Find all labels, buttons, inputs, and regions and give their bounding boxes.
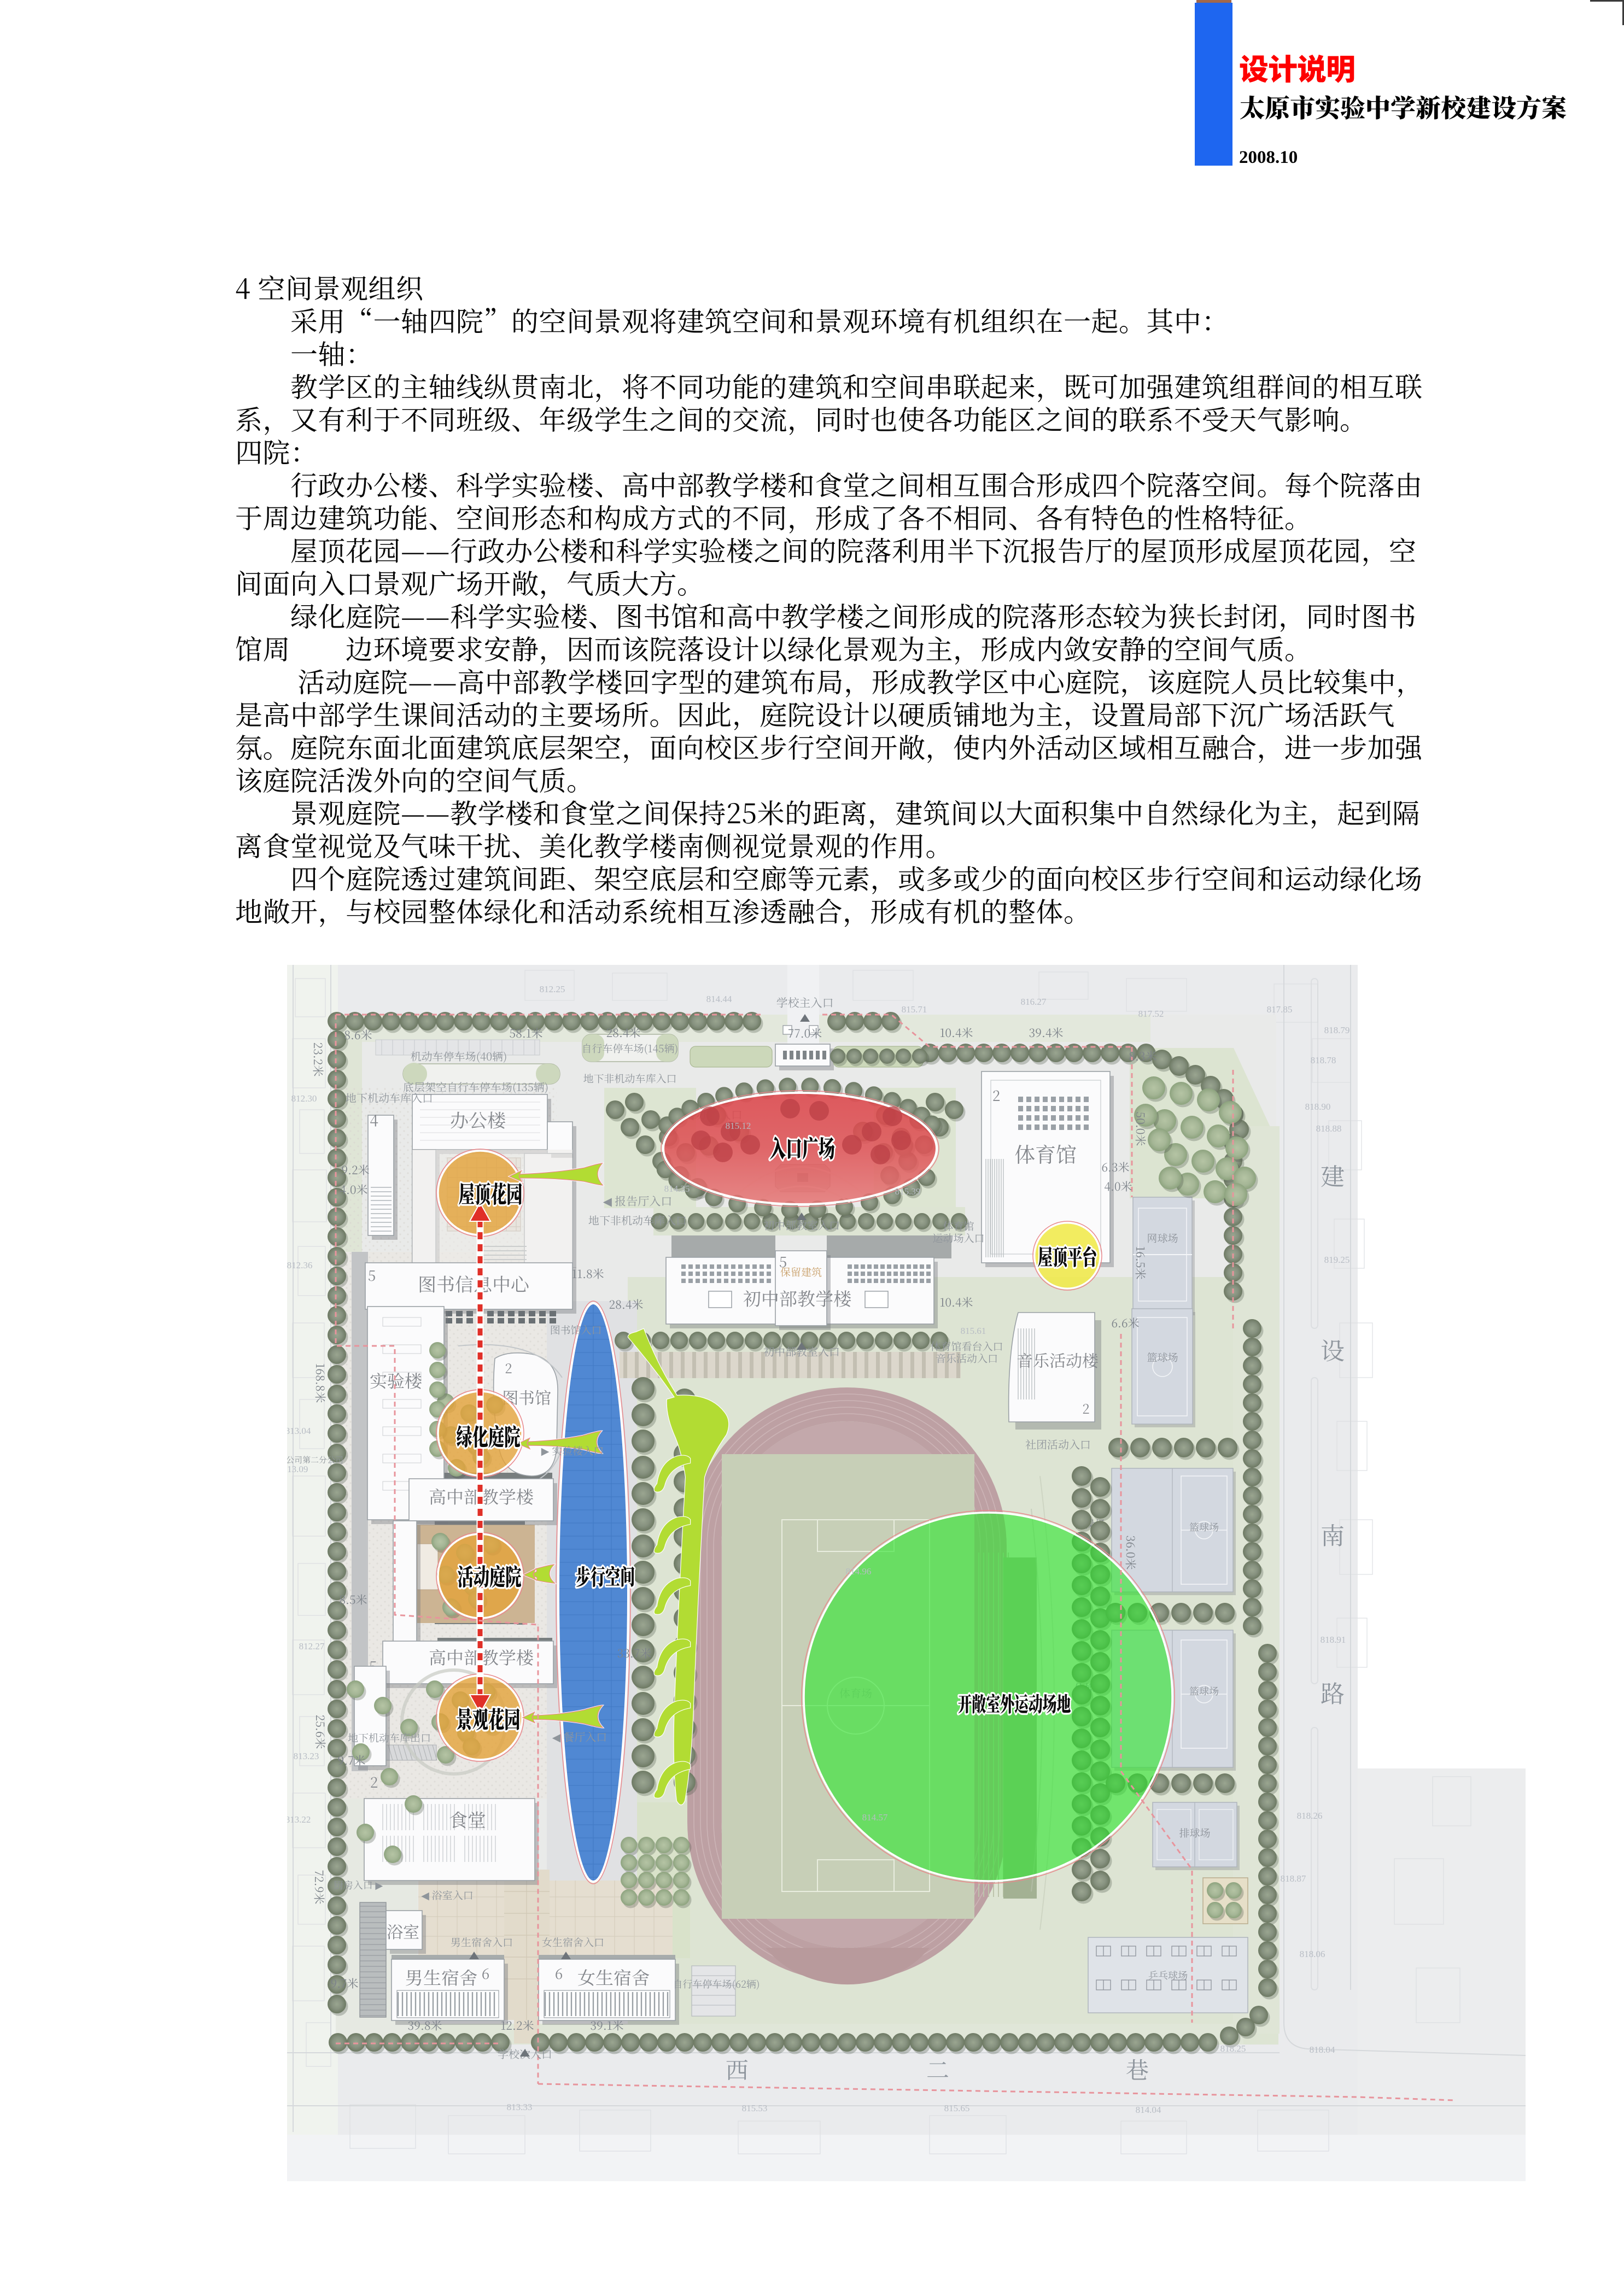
svg-text:男生宿舍: 男生宿舍 [405,1964,477,1990]
svg-text:815.53: 815.53 [742,2103,768,2113]
svg-text:二: 二 [926,2053,949,2086]
svg-text:巷: 巷 [1126,2053,1149,2086]
svg-text:813.09: 813.09 [287,1464,308,1474]
svg-text:11.8米: 11.8米 [571,1266,604,1282]
svg-text:运动场入口: 运动场入口 [932,1231,984,1245]
svg-text:818.87: 818.87 [1281,1873,1306,1884]
svg-text:818.25: 818.25 [1220,2043,1246,2054]
svg-text:学校主入口: 学校主入口 [776,994,834,1011]
svg-text:8.6米: 8.6米 [344,1027,372,1043]
svg-text:72.9米: 72.9米 [311,1870,328,1905]
svg-text:6: 6 [482,1963,490,1983]
svg-text:南: 南 [1321,1516,1345,1551]
svg-text:5: 5 [368,1265,376,1285]
svg-text:77.0米: 77.0米 [788,1025,822,1041]
svg-text:818.90: 818.90 [1305,1102,1331,1112]
svg-text:机动车停车场(40辆): 机动车停车场(40辆) [411,1048,507,1064]
svg-text:816.27: 816.27 [1021,997,1047,1007]
svg-text:4.0米: 4.0米 [340,1181,367,1198]
svg-text:818.79: 818.79 [1324,1025,1350,1035]
svg-text:36.0米: 36.0米 [1123,1536,1139,1570]
svg-text:屋顶花园: 屋顶花园 [459,1176,523,1210]
svg-text:818.78: 818.78 [1311,1055,1336,1065]
svg-text:景观花园: 景观花园 [457,1701,521,1735]
svg-text:地下机动车库出口: 地下机动车库出口 [348,1730,431,1745]
svg-text:◀ 餐厅入口: ◀ 餐厅入口 [552,1729,607,1744]
svg-text:网球场: 网球场 [1147,1231,1178,1245]
svg-text:男生宿舍入口: 男生宿舍入口 [451,1935,513,1949]
svg-text:8.5米: 8.5米 [339,1591,367,1608]
svg-text:初中部教学楼: 初中部教学楼 [743,1285,851,1311]
svg-text:绿化庭院: 绿化庭院 [457,1419,521,1452]
svg-text:50.0米: 50.0米 [1132,1112,1149,1146]
svg-text:9.2米: 9.2米 [341,1162,369,1178]
svg-text:◀ 浴室入口: ◀ 浴室入口 [421,1888,473,1902]
svg-text:818.06: 818.06 [1300,1949,1325,1959]
svg-text:食堂: 食堂 [449,1806,486,1832]
svg-text:设: 设 [1321,1332,1345,1367]
svg-text:图书信息中心: 图书信息中心 [418,1270,529,1297]
svg-text:保留建筑: 保留建筑 [780,1264,822,1279]
svg-text:音乐活动入口: 音乐活动入口 [936,1351,998,1366]
svg-text:9.7米: 9.7米 [337,1752,365,1768]
svg-text:西: 西 [726,2053,749,2086]
svg-text:◀ 报告厅入口: ◀ 报告厅入口 [603,1193,673,1209]
svg-text:步行空间: 步行空间 [576,1560,635,1591]
svg-text:817.85: 817.85 [1267,1004,1293,1015]
svg-text:4: 4 [370,1109,378,1131]
svg-text:12.2米: 12.2米 [500,2017,534,2034]
svg-text:6: 6 [555,1963,563,1983]
svg-text:社团活动入口: 社团活动入口 [1025,1436,1091,1452]
svg-text:25.6米: 25.6米 [312,1714,329,1749]
svg-text:路: 路 [1321,1674,1345,1709]
svg-text:818.88: 818.88 [1316,1123,1342,1134]
svg-text:办公楼: 办公楼 [450,1106,506,1133]
svg-text:28.4米: 28.4米 [606,1024,641,1041]
svg-text:活动庭院: 活动庭院 [458,1559,522,1592]
svg-text:厨房入口 ▶: 厨房入口 ▶ [334,1878,383,1892]
svg-text:6.3米: 6.3米 [1101,1159,1129,1175]
svg-text:814.57: 814.57 [862,1812,888,1823]
svg-text:812.30: 812.30 [291,1093,317,1104]
svg-text:地下非机动车库入口: 地下非机动车库入口 [588,1212,687,1228]
svg-text:814.96: 814.96 [846,1566,872,1577]
svg-text:实验楼: 实验楼 [370,1368,422,1393]
svg-text:入口广场: 入口广场 [769,1130,835,1164]
svg-text:812.25: 812.25 [540,984,565,994]
svg-text:39.1米: 39.1米 [590,2017,623,2034]
svg-text:812.27: 812.27 [299,1641,325,1651]
svg-text:813.23: 813.23 [294,1751,319,1761]
svg-text:813.04: 813.04 [287,1426,311,1436]
svg-text:16.5米: 16.5米 [1132,1246,1149,1279]
svg-text:817.52: 817.52 [1138,1009,1164,1019]
svg-text:815.65: 815.65 [944,2103,970,2113]
svg-text:818.91: 818.91 [1321,1635,1346,1645]
svg-text:体育馆: 体育馆 [1014,1138,1077,1168]
svg-text:814.44: 814.44 [706,994,732,1004]
svg-text:815.71: 815.71 [902,1004,927,1015]
svg-text:2: 2 [1082,1398,1089,1418]
svg-text:168.8米: 168.8米 [312,1363,329,1403]
svg-text:814.04: 814.04 [1136,2105,1161,2115]
svg-text:813.33: 813.33 [507,2102,533,2112]
svg-text:女生宿舍入口: 女生宿舍入口 [542,1935,604,1949]
svg-text:39.8米: 39.8米 [407,2017,442,2034]
svg-text:2: 2 [992,1085,1001,1105]
svg-text:地下机动车库入口: 地下机动车库入口 [346,1090,433,1105]
svg-text:815.12: 815.12 [726,1121,751,1131]
svg-text:自行车停车场(62辆): 自行车停车场(62辆) [673,1977,760,1991]
svg-text:自行车停车场(145辆): 自行车停车场(145辆) [582,1041,679,1056]
svg-text:音乐活动楼: 音乐活动楼 [1017,1348,1099,1372]
svg-text:篮球场: 篮球场 [1189,1684,1219,1698]
svg-text:814.35: 814.35 [664,1184,690,1194]
svg-text:开敞室外运动场地: 开敞室外运动场地 [958,1689,1071,1718]
svg-text:屋顶平台: 屋顶平台 [1038,1240,1097,1271]
svg-text:10.4米: 10.4米 [939,1294,973,1310]
svg-text:2: 2 [505,1358,512,1377]
svg-text:815.61: 815.61 [961,1326,986,1336]
svg-text:23.2米: 23.2米 [310,1042,326,1077]
svg-text:28.4米: 28.4米 [609,1296,644,1313]
svg-text:33.7米: 33.7米 [617,1645,652,1661]
svg-text:建: 建 [1321,1157,1345,1192]
svg-text:813.22: 813.22 [287,1814,311,1825]
svg-text:6.6米: 6.6米 [1111,1315,1139,1331]
svg-text:4.0米: 4.0米 [1104,1178,1132,1194]
svg-text:排球场: 排球场 [1179,1825,1210,1840]
svg-text:815.39: 815.39 [895,1186,921,1197]
svg-text:818.26: 818.26 [1297,1811,1323,1821]
svg-text:图书馆入口: 图书馆入口 [550,1322,601,1337]
svg-text:8.3米: 8.3米 [1129,1048,1156,1064]
svg-text:女生宿舍: 女生宿舍 [577,1964,650,1990]
svg-text:浴室: 浴室 [387,1919,419,1943]
svg-text:819.25: 819.25 [1324,1255,1350,1265]
svg-text:812.36: 812.36 [287,1260,312,1270]
svg-text:篮球场: 篮球场 [1147,1350,1178,1364]
svg-text:乒乓球场: 乒乓球场 [1148,1968,1188,1982]
svg-text:2: 2 [370,1772,378,1792]
svg-text:篮球场: 篮球场 [1189,1520,1219,1534]
svg-text:39.4米: 39.4米 [1029,1024,1063,1041]
svg-text:▶ 实验楼入口: ▶ 实验楼入口 [541,1443,604,1458]
svg-text:58.1米: 58.1米 [509,1025,542,1041]
svg-text:818.04: 818.04 [1310,2045,1335,2055]
svg-text:地下非机动车库入口: 地下非机动车库入口 [583,1071,676,1086]
svg-text:9.7米: 9.7米 [330,1975,358,1992]
svg-text:10.4米: 10.4米 [939,1024,973,1041]
